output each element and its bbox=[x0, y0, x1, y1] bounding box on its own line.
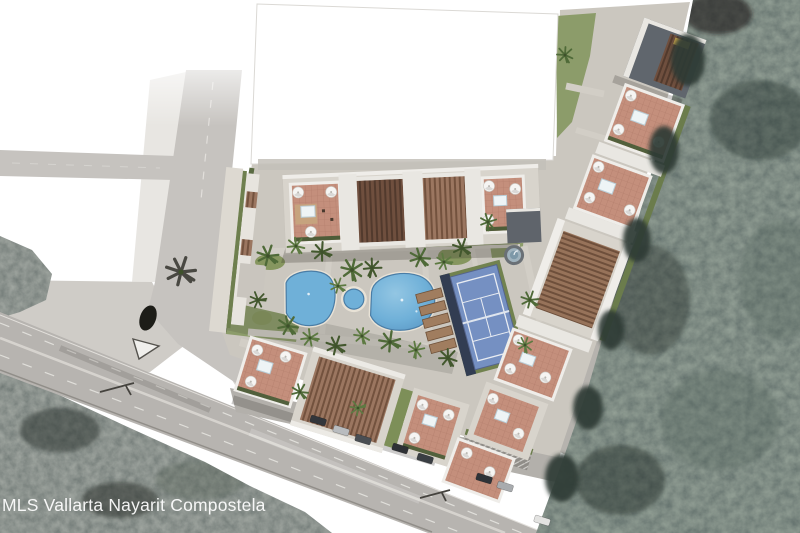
watermark: MLS Vallarta Nayarit Compostela bbox=[2, 495, 266, 516]
umbrella-icon bbox=[305, 226, 316, 237]
spa-round bbox=[343, 289, 364, 310]
white-parcel bbox=[251, 4, 558, 164]
plunge-pool bbox=[301, 206, 315, 218]
umbrella-icon bbox=[325, 186, 336, 197]
pergola-roof bbox=[357, 179, 406, 243]
umbrella-icon bbox=[509, 183, 520, 194]
aerial-site-plan: MLS Vallarta Nayarit Compostela bbox=[0, 0, 800, 533]
stair-core bbox=[402, 171, 425, 248]
roof-terrace bbox=[289, 181, 344, 245]
site-plan-canvas bbox=[0, 0, 800, 533]
umbrella-icon bbox=[292, 187, 303, 198]
umbrella-icon bbox=[483, 180, 494, 191]
stair-core bbox=[338, 174, 359, 251]
pergola-roof bbox=[423, 176, 468, 240]
dark-roof bbox=[506, 208, 541, 243]
